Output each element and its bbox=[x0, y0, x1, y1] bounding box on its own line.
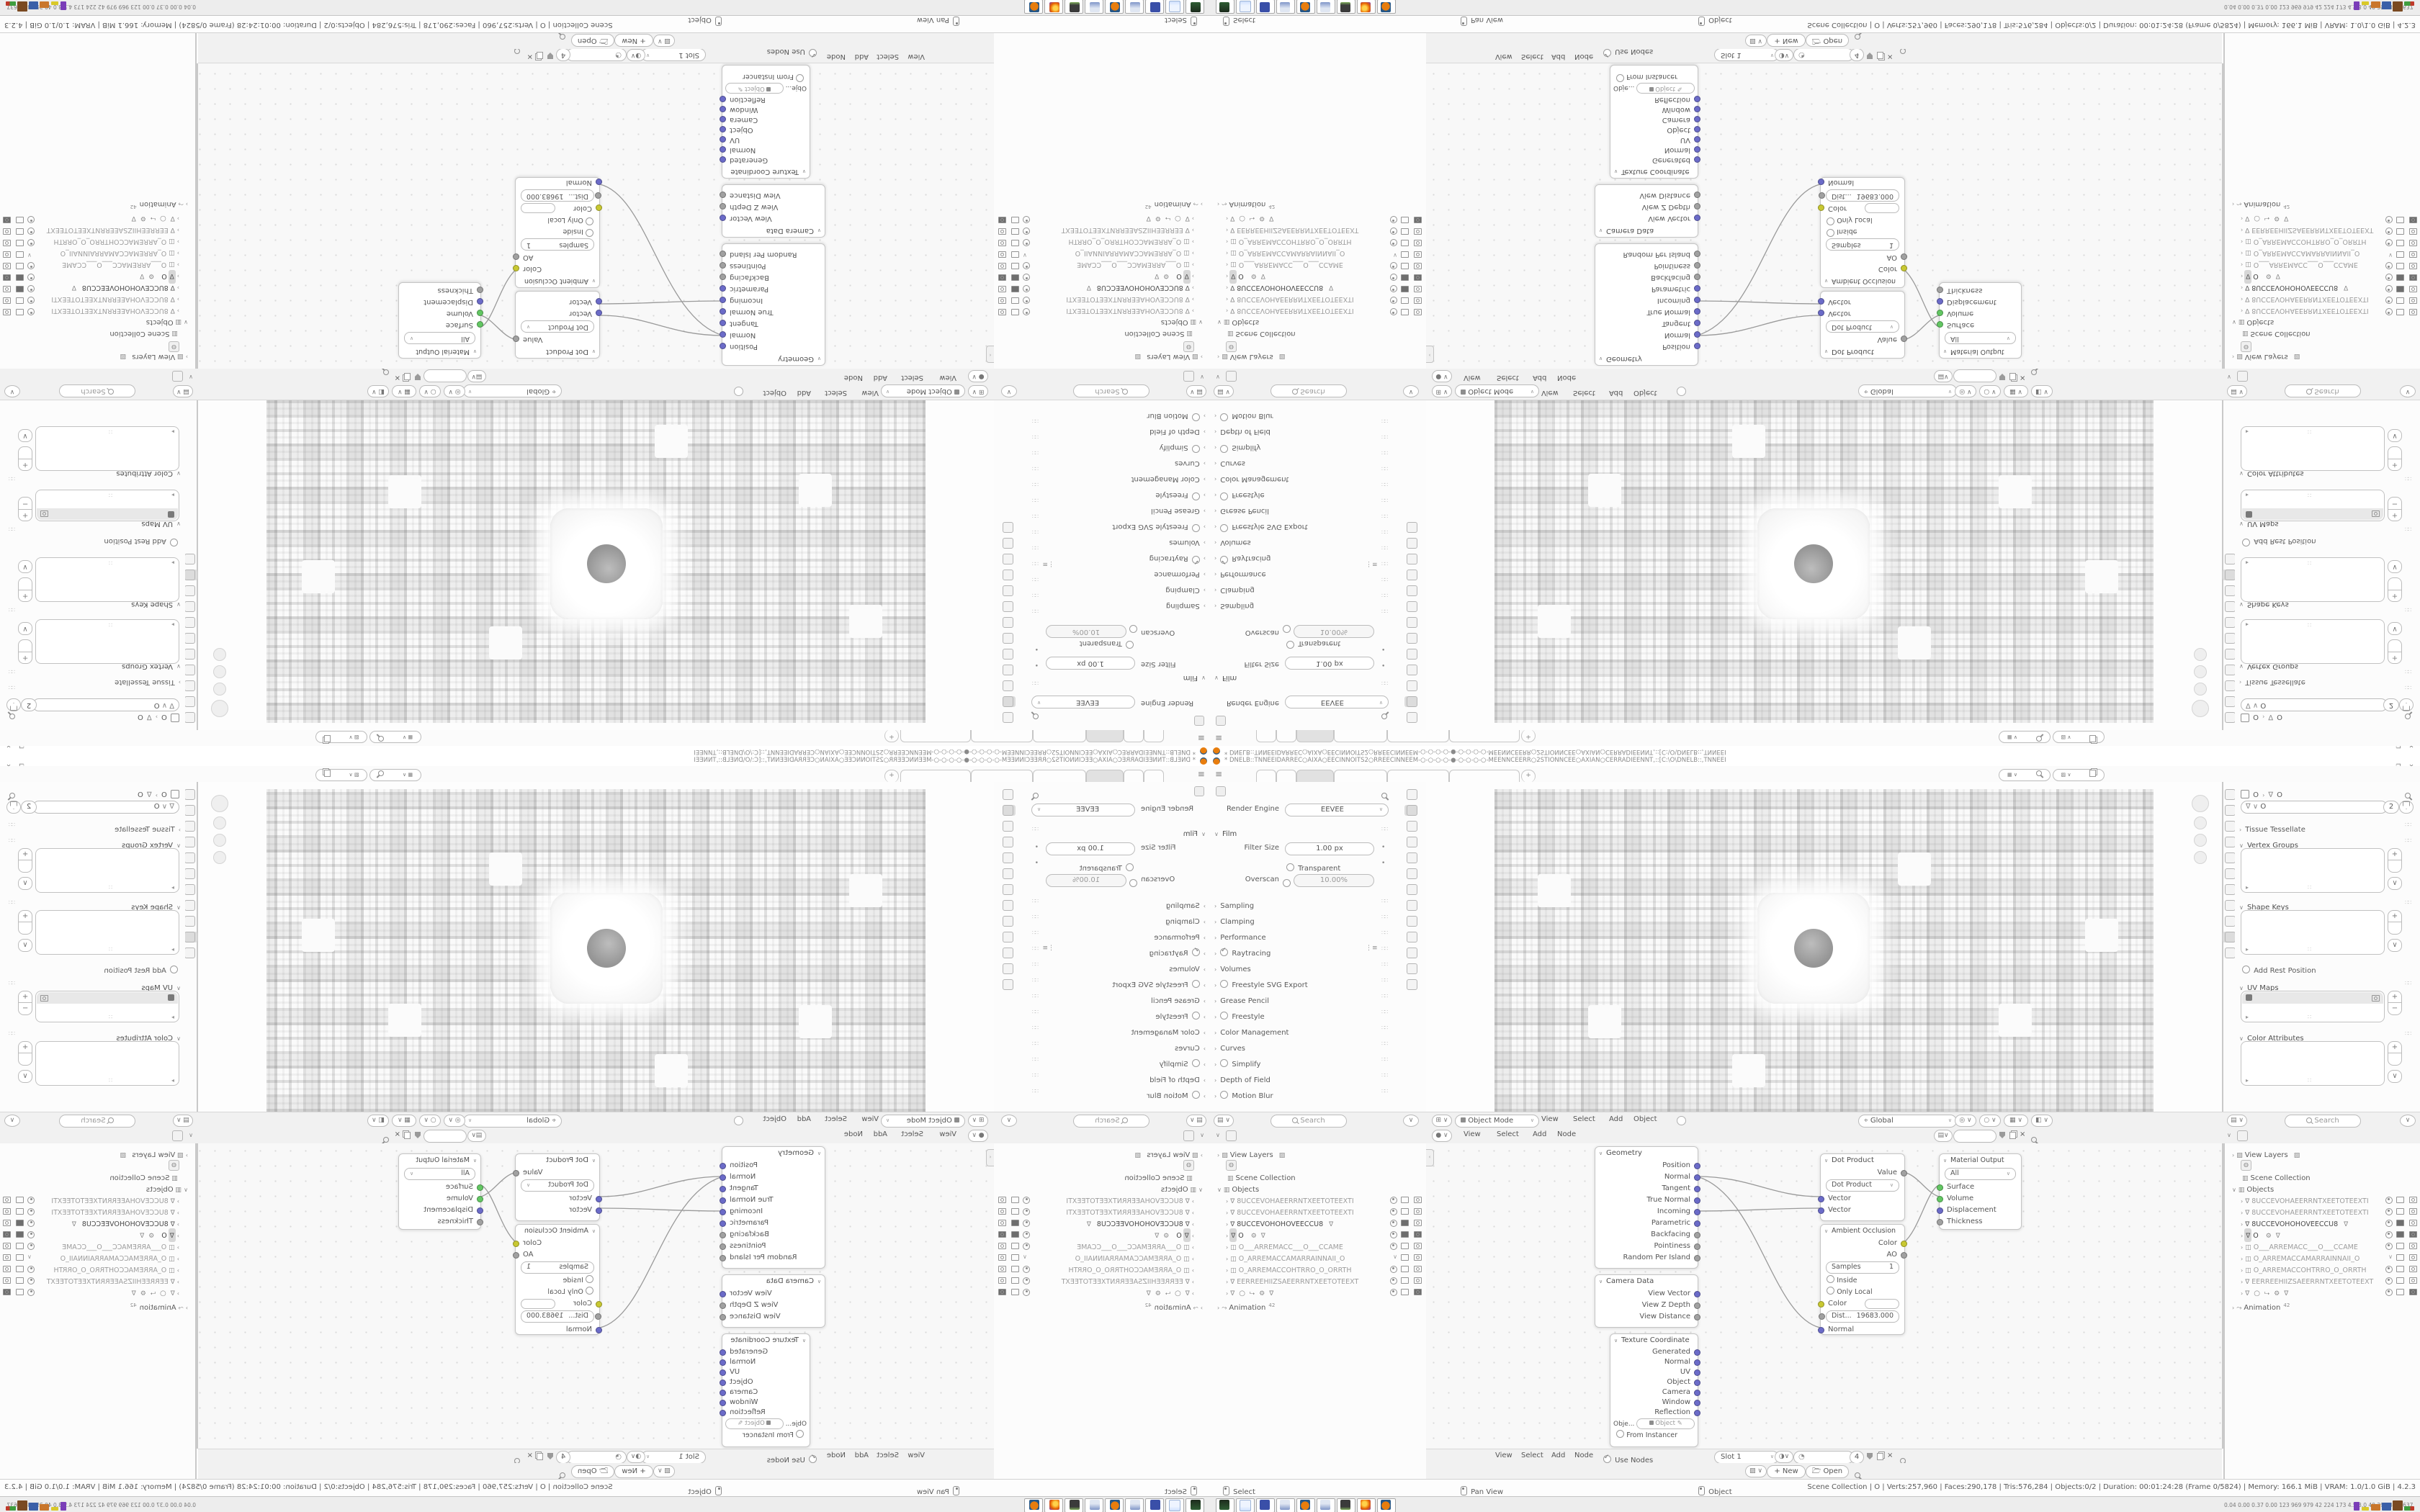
only-local-checkbox[interactable]: Only Local bbox=[1821, 1287, 1904, 1298]
socket-camera[interactable] bbox=[1694, 1390, 1700, 1396]
browse-image-icon[interactable]: ▨ ∨ bbox=[653, 1465, 675, 1477]
node-menu-view[interactable]: View bbox=[907, 1452, 925, 1459]
node-title[interactable]: Geometry bbox=[1595, 352, 1698, 365]
workspace-tab[interactable] bbox=[1276, 729, 1296, 742]
remove-color-attribute-button[interactable] bbox=[2388, 446, 2402, 459]
shape-key-specials-menu[interactable]: ∨ bbox=[2388, 939, 2402, 952]
taskbar-app-notepad[interactable] bbox=[1165, 1498, 1184, 1512]
outliner-item[interactable]: ›∇8UCCEVOHAEERRNTXEETOTEEXTI bbox=[0, 296, 195, 307]
socket-value[interactable] bbox=[513, 1170, 519, 1176]
socket-object[interactable] bbox=[1694, 126, 1700, 132]
viewport-menu-select[interactable]: Select bbox=[825, 1115, 847, 1123]
remove-shape-key-button[interactable] bbox=[2388, 577, 2402, 590]
object-tab-icon[interactable] bbox=[1407, 884, 1417, 895]
outliner-item[interactable]: ›∇○⮡⚙∇ bbox=[2225, 215, 2420, 226]
socket-thickness[interactable] bbox=[1937, 1219, 1943, 1225]
socket-color-out[interactable] bbox=[513, 1241, 519, 1247]
physics-tab-icon[interactable] bbox=[184, 916, 195, 927]
data-tab-icon[interactable] bbox=[184, 932, 195, 942]
vector-math-operation-dropdown[interactable]: Dot Product∨ bbox=[521, 320, 594, 333]
node-title[interactable]: Camera Data bbox=[1595, 224, 1698, 237]
section-freestyle-svg[interactable]: › Freestyle SVG Export bbox=[1214, 522, 1308, 536]
window-titlebar[interactable]: * DNELB::TNNEEIDARREC○AIXA○EECINNOITS2○R… bbox=[0, 756, 1210, 767]
color-attributes-list[interactable]: ▸∷ bbox=[2241, 1041, 2385, 1086]
anim-dot[interactable]: • bbox=[1035, 860, 1039, 867]
overscan-field[interactable]: 10.00% bbox=[1046, 625, 1126, 638]
render-tab-icon[interactable] bbox=[2225, 805, 2236, 816]
socket-distance[interactable] bbox=[595, 1313, 601, 1320]
section-freestyle[interactable]: › Freestyle bbox=[1214, 490, 1265, 504]
gizmo-dropdown[interactable]: ◧ ∨ bbox=[2031, 385, 2053, 397]
add-workspace-button[interactable]: + bbox=[884, 729, 899, 742]
node-title[interactable]: Ambient Occlusion bbox=[1821, 1225, 1904, 1238]
socket-ao-out[interactable] bbox=[513, 253, 519, 260]
view-layers-row[interactable]: ›▨View Layers▨ bbox=[994, 354, 1210, 364]
workspace-tab[interactable] bbox=[900, 770, 971, 783]
socket-position[interactable] bbox=[1694, 1163, 1700, 1169]
tool-tab-icon[interactable] bbox=[2225, 789, 2236, 800]
taskbar-app-blender[interactable] bbox=[1296, 1498, 1315, 1512]
scene-collection-row[interactable]: ▥Scene Collection bbox=[2225, 1171, 2420, 1182]
socket-view-z-depth[interactable] bbox=[720, 1302, 726, 1309]
vertex-groups-list[interactable]: ▸∷ bbox=[2241, 619, 2385, 664]
outliner-item[interactable]: ›∇EERREEHIIZSAEERRNTXEETOTEEXT bbox=[2225, 227, 2420, 238]
constraints-tab-icon[interactable] bbox=[1407, 948, 1417, 958]
browse-material-icon[interactable]: ◑∨ bbox=[1775, 1451, 1793, 1463]
workspace-tab[interactable] bbox=[900, 729, 971, 742]
viewport-menu-view[interactable]: View bbox=[861, 389, 879, 397]
viewport-editor-type-button[interactable]: ⊞ ∨ bbox=[968, 1115, 988, 1127]
view-layer-tab-icon[interactable] bbox=[1003, 665, 1013, 675]
outliner-item[interactable]: ›∇8UCCEVOHAEERRNTXEETOTEEXTI bbox=[2225, 296, 2420, 307]
viewport-menu-select[interactable]: Select bbox=[1573, 1115, 1595, 1123]
material-tab-icon[interactable] bbox=[1003, 979, 1013, 990]
section-depth-of-field[interactable]: › Depth of Field bbox=[1214, 1071, 1270, 1085]
socket-thickness[interactable] bbox=[477, 1219, 483, 1225]
outliner-item[interactable]: ›∇○⮡⚙∇ bbox=[994, 215, 1210, 226]
add-rest-position-checkbox[interactable]: Add Rest Position bbox=[104, 536, 178, 550]
camera-data-node[interactable]: Camera Data View Vector View Z Depth Vie… bbox=[722, 1274, 825, 1328]
overscan-checkbox[interactable] bbox=[1129, 876, 1137, 889]
vertex-group-specials-menu[interactable]: ∨ bbox=[2388, 622, 2402, 635]
sphere-object[interactable] bbox=[587, 544, 626, 583]
constraints-tab-icon[interactable] bbox=[1003, 554, 1013, 564]
outliner-display-mode-icon[interactable] bbox=[172, 1130, 183, 1141]
node-menu-select[interactable]: Select bbox=[1521, 53, 1543, 60]
node-menu-add[interactable]: Add bbox=[1533, 374, 1546, 382]
object-eyedropper-field[interactable]: Object ✎ bbox=[725, 1418, 784, 1429]
unlink-material-icon[interactable]: × bbox=[1887, 53, 1893, 60]
socket-incoming[interactable] bbox=[1694, 297, 1700, 303]
taskbar-app-monitor[interactable] bbox=[1337, 0, 1355, 14]
socket-color-in[interactable] bbox=[596, 1301, 602, 1308]
outliner-item[interactable]: ›∇8UCCEVOHAEERRNTXEETOTEEXTI bbox=[1210, 296, 1426, 307]
only-local-checkbox[interactable]: Only Local bbox=[516, 214, 599, 225]
outliner-display-mode-icon[interactable] bbox=[1226, 1130, 1237, 1141]
taskbar-app-monitor[interactable] bbox=[1337, 1498, 1355, 1512]
collapse-menus-button[interactable]: ∨ bbox=[1001, 1115, 1017, 1127]
view-layers-row[interactable]: ›▨View Layers▨ bbox=[1210, 1148, 1426, 1158]
properties-search-field[interactable]: Search bbox=[59, 1115, 135, 1128]
modifiers-tab-icon[interactable] bbox=[1003, 900, 1013, 911]
open-image-button[interactable]: 🗁 Open bbox=[1806, 1465, 1849, 1478]
node-editor-type-button[interactable]: ● ∨ bbox=[1432, 1130, 1452, 1142]
fake-user-button[interactable] bbox=[6, 698, 21, 711]
distance-field[interactable]: Dist...19683.000 bbox=[1826, 1310, 1899, 1323]
section-color-management[interactable]: › Color Management bbox=[1214, 1024, 1289, 1038]
socket-vector-1[interactable] bbox=[596, 310, 602, 316]
section-sampling[interactable]: › Sampling bbox=[1214, 601, 1254, 615]
distance-field[interactable]: Dist...19683.000 bbox=[521, 189, 594, 202]
pin-icon[interactable] bbox=[1033, 793, 1039, 798]
socket-normal[interactable] bbox=[720, 331, 726, 338]
snapping-toggle[interactable]: ◎ ∨ bbox=[1955, 385, 1976, 397]
mesh-datablock-field[interactable]: ∇ ∨ O bbox=[32, 801, 179, 814]
color-attributes-list[interactable]: ▸∷ bbox=[35, 426, 179, 471]
viewport-menu-view[interactable]: View bbox=[861, 1115, 879, 1123]
socket-object[interactable] bbox=[1694, 1380, 1700, 1386]
window-titlebar[interactable]: * DNELB::TNNEEIDARREC○AIXA○EECINNOITS2○R… bbox=[1210, 745, 2420, 756]
add-vertex-group-button[interactable]: + bbox=[18, 651, 32, 664]
render-tab-icon[interactable] bbox=[1407, 696, 1417, 707]
shader-node-editor[interactable]: ‹ Geometry Position Normal Tangent True … bbox=[1426, 63, 2223, 369]
camera-data-node[interactable]: Camera Data View Vector View Z Depth Vie… bbox=[1595, 184, 1698, 238]
socket-parametric[interactable] bbox=[720, 285, 726, 292]
transparent-checkbox[interactable]: Transparent bbox=[1080, 639, 1134, 652]
node-menu-node[interactable]: Node bbox=[1574, 1452, 1593, 1459]
output-tab-icon[interactable] bbox=[2225, 680, 2236, 691]
socket-incoming[interactable] bbox=[720, 1209, 726, 1215]
data-tab-icon[interactable] bbox=[1407, 963, 1417, 974]
outliner-item[interactable]: ›◫O___ARREMACC___O___CCAME bbox=[1210, 261, 1426, 272]
node-menu-node[interactable]: Node bbox=[827, 1452, 846, 1459]
socket-random-per-island[interactable] bbox=[1694, 1255, 1700, 1261]
particles-tab-icon[interactable] bbox=[1003, 585, 1013, 596]
outliner-item[interactable]: ›∇8UCCEVOHAEERRNTXEETOTEEXTI bbox=[2225, 307, 2420, 318]
pin-icon[interactable] bbox=[383, 369, 389, 375]
node-menu-add[interactable]: Add bbox=[855, 53, 869, 60]
target-dropdown[interactable]: All∨ bbox=[404, 1168, 475, 1180]
socket-reflection[interactable] bbox=[1694, 1410, 1700, 1416]
anim-dot[interactable]: • bbox=[1381, 645, 1385, 652]
remove-color-attribute-button[interactable] bbox=[18, 1053, 32, 1066]
world-row[interactable]: ◍ bbox=[2225, 1159, 2420, 1170]
outliner-display-mode-icon[interactable] bbox=[1183, 371, 1194, 382]
node-editor-type-button[interactable]: ● ∨ bbox=[968, 370, 988, 382]
section-grease-pencil[interactable]: › Grease Pencil bbox=[1214, 506, 1269, 520]
physics-tab-icon[interactable] bbox=[184, 585, 195, 596]
socket-tangent[interactable] bbox=[720, 320, 726, 326]
properties-search-field[interactable]: Search bbox=[2285, 384, 2361, 397]
pin-icon[interactable] bbox=[1855, 34, 1860, 40]
section-freestyle-svg[interactable]: › Freestyle SVG Export bbox=[1214, 976, 1308, 990]
properties-editor-type-button[interactable]: ▤ ∨ bbox=[2227, 385, 2247, 397]
material-output-node[interactable]: Material Output All∨ Surface Volume Disp… bbox=[1939, 282, 2022, 359]
world-row[interactable]: ◍ bbox=[2225, 342, 2420, 353]
render-camera-icon[interactable] bbox=[40, 510, 48, 517]
world-tab-icon[interactable] bbox=[2225, 633, 2236, 644]
workspace-tab[interactable] bbox=[1033, 729, 1086, 742]
section-performance[interactable]: › Performance bbox=[1154, 929, 1206, 942]
fake-user-icon[interactable] bbox=[415, 374, 421, 380]
output-tab-icon[interactable] bbox=[1407, 680, 1417, 691]
viewport-menu-view[interactable]: View bbox=[1541, 1115, 1559, 1123]
taskbar-app-media[interactable] bbox=[1186, 1498, 1204, 1512]
outliner-item[interactable]: ›∇8UCCEVOHAEERRNTXEETOTEEXTI bbox=[0, 307, 195, 318]
render-tab-icon[interactable] bbox=[1407, 805, 1417, 816]
socket-volume[interactable] bbox=[477, 310, 483, 316]
pivot-point-selector[interactable]: ▦ ∨ bbox=[2004, 1115, 2028, 1127]
taskbar-app-firefox[interactable] bbox=[1044, 0, 1063, 14]
tool-tab-icon[interactable] bbox=[1407, 789, 1417, 800]
workspace-tab[interactable] bbox=[1033, 770, 1086, 783]
from-instancer-checkbox[interactable]: From Instancer bbox=[1610, 1430, 1698, 1441]
material-slot-selector[interactable]: Slot 1∨ bbox=[1714, 48, 1779, 61]
section-color-management[interactable]: › Color Management bbox=[1214, 474, 1289, 488]
node-tree-datablock-field[interactable] bbox=[1953, 369, 1996, 382]
pin-icon[interactable] bbox=[560, 34, 565, 40]
data-tab-icon[interactable] bbox=[184, 570, 195, 580]
texture-coordinate-node[interactable]: Texture Coordinate Generated Normal UV O… bbox=[1610, 1333, 1698, 1447]
new-image-button[interactable]: + New bbox=[1767, 1465, 1806, 1478]
add-vertex-group-button[interactable]: + bbox=[2388, 651, 2402, 664]
samples-field[interactable]: Samples1 bbox=[521, 1261, 594, 1274]
world-row[interactable]: ◍ bbox=[0, 1159, 195, 1170]
mesh-datablock-field[interactable]: ∇ ∨ O bbox=[32, 698, 179, 711]
modifiers-tab-icon[interactable] bbox=[1407, 601, 1417, 612]
pin-icon[interactable] bbox=[383, 1137, 389, 1143]
data-tab-icon[interactable] bbox=[2225, 570, 2236, 580]
taskbar-app-firefox[interactable] bbox=[1357, 1498, 1376, 1512]
properties-search-field[interactable]: Search bbox=[1073, 1115, 1149, 1128]
unlink-datablock-icon[interactable]: × bbox=[395, 374, 400, 382]
transform-orientation-selector[interactable]: ⌖ Global∨ bbox=[463, 1115, 562, 1128]
ambient-occlusion-node[interactable]: Ambient Occlusion Color AO Samples1 Insi… bbox=[515, 177, 600, 288]
render-engine-dropdown[interactable]: EEVEE∨ bbox=[1031, 804, 1135, 816]
tool-tab-icon[interactable] bbox=[184, 712, 195, 723]
viewport-editor-type-button[interactable]: ⊞ ∨ bbox=[1432, 1115, 1452, 1127]
section-freestyle-svg[interactable]: › Freestyle SVG Export bbox=[1112, 976, 1206, 990]
remove-color-attribute-button[interactable] bbox=[18, 446, 32, 459]
render-tab-icon[interactable] bbox=[2225, 696, 2236, 707]
socket-tangent[interactable] bbox=[720, 1186, 726, 1192]
socket-displacement[interactable] bbox=[1937, 1207, 1943, 1214]
view-layer-selector[interactable]: ▨ ∨ bbox=[315, 731, 367, 743]
view-layer-tab-icon[interactable] bbox=[1407, 665, 1417, 675]
taskbar-app-disk64[interactable] bbox=[1145, 0, 1164, 14]
add-workspace-button[interactable]: + bbox=[1521, 729, 1536, 742]
viewport-3d[interactable] bbox=[197, 400, 994, 730]
node-title[interactable]: Dot Product bbox=[1821, 345, 1904, 358]
copy-datablock-icon[interactable] bbox=[2009, 373, 2016, 380]
object-tab-icon[interactable] bbox=[1003, 617, 1013, 628]
outliner-item-selected[interactable]: ›∇8UCCEVOHOHOVEECCU8∇ bbox=[994, 284, 1210, 295]
node-title[interactable]: Material Output bbox=[1940, 345, 2021, 358]
fake-user-button[interactable] bbox=[6, 801, 21, 814]
dot-product-node[interactable]: Dot Product Value Dot Product∨ Vector Ve… bbox=[1820, 291, 1905, 359]
section-depth-of-field[interactable]: › Depth of Field bbox=[1149, 427, 1206, 441]
outliner-item[interactable]: ›◫O_ARREMACCAMARRAINNAII_O∨ bbox=[994, 1251, 1210, 1262]
node-title[interactable]: Camera Data bbox=[1595, 1275, 1698, 1288]
node-title[interactable]: Geometry bbox=[1595, 1147, 1698, 1160]
render-engine-dropdown[interactable]: EEVEE∨ bbox=[1285, 696, 1389, 708]
add-uv-map-button[interactable]: + bbox=[2388, 508, 2402, 521]
section-curves[interactable]: › Curves bbox=[1175, 459, 1206, 472]
add-shape-key-button[interactable]: + bbox=[2388, 589, 2402, 602]
pin-icon[interactable] bbox=[1381, 793, 1387, 798]
outliner-item[interactable]: ›∇○⮡⚙∇ bbox=[1210, 215, 1426, 226]
outliner-item[interactable]: ›◫O_ARREMACCOHTRRO_O_ORRTH bbox=[0, 238, 195, 249]
socket-window[interactable] bbox=[720, 106, 726, 112]
pin-icon[interactable] bbox=[1381, 714, 1387, 719]
node-title[interactable]: Ambient Occlusion bbox=[516, 1225, 599, 1238]
outliner-item[interactable]: ›◫O_ARREMACCOHTRRO_O_ORRTH bbox=[1210, 238, 1426, 249]
node-menu-view[interactable]: View bbox=[1495, 1452, 1512, 1459]
node-menu-select[interactable]: Select bbox=[901, 374, 923, 382]
socket-view-distance[interactable] bbox=[1694, 192, 1700, 198]
taskbar-app-disk64[interactable] bbox=[1145, 1498, 1164, 1512]
particles-tab-icon[interactable] bbox=[1407, 585, 1417, 596]
anim-dot[interactable]: • bbox=[1381, 860, 1385, 867]
socket-displacement[interactable] bbox=[1937, 298, 1943, 305]
color-attribute-specials-menu[interactable]: ∨ bbox=[2388, 1070, 2402, 1083]
socket-normal[interactable] bbox=[1694, 1359, 1700, 1366]
material-slot-selector[interactable]: Slot 1∨ bbox=[641, 1451, 706, 1464]
pin-icon[interactable] bbox=[9, 793, 15, 798]
socket-distance[interactable] bbox=[1819, 192, 1825, 199]
transform-orientation-selector[interactable]: ⌖ Global∨ bbox=[1858, 1115, 1957, 1128]
section-simplify[interactable]: › Simplify bbox=[1160, 443, 1206, 456]
node-title[interactable]: Ambient Occlusion bbox=[516, 274, 599, 287]
pin-icon[interactable] bbox=[1855, 1472, 1860, 1478]
texture-coordinate-node[interactable]: Texture Coordinate Generated Normal UV O… bbox=[722, 65, 810, 179]
socket-normal-in[interactable] bbox=[1818, 179, 1824, 185]
outliner-item[interactable]: ›◫O_ARREMACCOHTRRO_O_ORRTH bbox=[994, 1263, 1210, 1274]
socket-view-z-depth[interactable] bbox=[1694, 1302, 1700, 1309]
node-tree-datablock-field[interactable] bbox=[423, 369, 467, 382]
outliner-item-selected[interactable]: ›∇8UCCEVOHOHOVEECCU8∇ bbox=[1210, 284, 1426, 295]
outliner-item[interactable]: ›◫O_ARREMACCAMARRAINNAII_O∨ bbox=[2225, 250, 2420, 261]
properties-search-field[interactable]: Search bbox=[1270, 384, 1347, 397]
socket-generated[interactable] bbox=[720, 156, 726, 163]
proportional-edit-toggle[interactable]: ○ ∨ bbox=[1979, 1115, 2001, 1127]
taskbar-app-calculator2[interactable] bbox=[1317, 1498, 1335, 1512]
constraints-tab-icon[interactable] bbox=[1003, 948, 1013, 958]
shape-key-specials-menu[interactable]: ∨ bbox=[18, 939, 32, 952]
uv-map-item[interactable] bbox=[2242, 508, 2383, 520]
node-menu-view[interactable]: View bbox=[1464, 1130, 1481, 1138]
object-tab-icon[interactable] bbox=[1003, 884, 1013, 895]
add-rest-position-checkbox[interactable]: Add Rest Position bbox=[104, 962, 178, 976]
socket-ao-out[interactable] bbox=[1901, 253, 1907, 260]
uv-maps-list[interactable]: ▸∷ bbox=[35, 490, 179, 521]
section-performance[interactable]: › Performance bbox=[1214, 929, 1266, 942]
outliner-item[interactable]: ›∇8UCCEVOHAEERRNTXEETOTEEXTI bbox=[994, 307, 1210, 318]
node-title[interactable]: Dot Product bbox=[516, 1154, 599, 1167]
texture-coordinate-node[interactable]: Texture Coordinate Generated Normal UV O… bbox=[1610, 65, 1698, 179]
workspace-tab[interactable] bbox=[1124, 770, 1144, 783]
users-count[interactable]: 2 bbox=[2383, 801, 2399, 814]
uv-map-item[interactable] bbox=[2242, 992, 2383, 1004]
outliner-display-mode-icon[interactable] bbox=[2237, 1130, 2248, 1141]
view-layers-row[interactable]: ›▨View Layers▨ bbox=[994, 1148, 1210, 1158]
mode-selector[interactable]: Object Mode ∨ bbox=[1455, 1115, 1539, 1128]
section-freestyle[interactable]: › Freestyle bbox=[1214, 1008, 1265, 1022]
socket-backfacing[interactable] bbox=[1694, 274, 1700, 280]
outliner-item[interactable]: ›◫O___ARREMACC___O___CCAME bbox=[2225, 261, 2420, 272]
dot-product-node[interactable]: Dot Product Value Dot Product∨ Vector Ve… bbox=[515, 1153, 600, 1221]
workspace-tab-active[interactable] bbox=[1296, 729, 1334, 742]
taskbar-app-notepad[interactable] bbox=[1236, 1498, 1255, 1512]
modifiers-tab-icon[interactable] bbox=[2225, 900, 2236, 911]
taskbar-app-blender[interactable] bbox=[1105, 1498, 1124, 1512]
node-menu-view[interactable]: View bbox=[939, 374, 956, 382]
render-camera-icon[interactable] bbox=[40, 995, 48, 1002]
unlink-datablock-icon[interactable]: × bbox=[2020, 374, 2025, 382]
section-tissue-tessellate[interactable]: › Tissue Tessellate bbox=[2239, 678, 2305, 691]
zoom-gizmo-icon[interactable] bbox=[2194, 683, 2207, 696]
workspace-tab[interactable] bbox=[1144, 770, 1164, 783]
view-layers-row[interactable]: ›▨View Layers▨ bbox=[2225, 1148, 2420, 1158]
outliner-item[interactable]: ›∇○⮡⚙∇ bbox=[2225, 1286, 2420, 1297]
view-layers-row[interactable]: ›▨View Layers▨ bbox=[0, 1148, 195, 1158]
view-layer-selector[interactable]: ▨ ∨ bbox=[2053, 769, 2105, 781]
socket-tangent[interactable] bbox=[1694, 1186, 1700, 1192]
node-menu-add[interactable]: Add bbox=[874, 1130, 887, 1138]
anim-dot[interactable]: • bbox=[1035, 844, 1039, 851]
material-tab-icon[interactable] bbox=[1407, 522, 1417, 533]
unlink-datablock-icon[interactable]: × bbox=[395, 1130, 400, 1138]
app-menu-icon[interactable]: ≡ bbox=[1215, 733, 1222, 743]
socket-volume[interactable] bbox=[1937, 1196, 1943, 1202]
scene-collection-row[interactable]: ▥Scene Collection bbox=[0, 1171, 195, 1182]
vector-math-operation-dropdown[interactable]: Dot Product∨ bbox=[1826, 320, 1899, 333]
output-tab-icon[interactable] bbox=[1407, 821, 1417, 832]
socket-displacement[interactable] bbox=[477, 1207, 483, 1214]
socket-value[interactable] bbox=[1901, 1170, 1907, 1176]
pin-icon[interactable] bbox=[9, 714, 15, 719]
outliner-item[interactable]: ›∇EERREEHIIZSAEERRNTXEETOTEEXT bbox=[1210, 227, 1426, 238]
taskbar-app-monitor[interactable] bbox=[1065, 0, 1083, 14]
outliner-item-active[interactable]: ›∇O⚙∇ bbox=[2225, 273, 2420, 284]
copy-material-icon[interactable] bbox=[537, 1453, 543, 1460]
object-eyedropper-field[interactable]: Object ✎ bbox=[725, 83, 784, 94]
socket-color-in[interactable] bbox=[596, 204, 602, 211]
output-tab-icon[interactable] bbox=[184, 821, 195, 832]
scene-collection-row[interactable]: ▥Scene Collection bbox=[994, 330, 1210, 341]
outliner-item[interactable]: ›∇8UCCEVOHAEERRNTXEETOTEEXTI bbox=[994, 1194, 1210, 1205]
color-swatch[interactable] bbox=[521, 1299, 555, 1309]
outliner-item[interactable]: ›◫O_ARREMACCAMARRAINNAII_O∨ bbox=[1210, 1251, 1426, 1262]
browse-image-icon[interactable]: ▨ ∨ bbox=[1745, 35, 1767, 47]
particles-tab-icon[interactable] bbox=[1003, 916, 1013, 927]
tool-tab-icon[interactable] bbox=[184, 789, 195, 800]
remove-vertex-group-button[interactable] bbox=[18, 639, 32, 652]
socket-reflection[interactable] bbox=[1694, 96, 1700, 102]
collapse-menus-button[interactable]: ∨ bbox=[4, 1115, 20, 1127]
render-engine-dropdown[interactable]: EEVEE∨ bbox=[1031, 696, 1135, 708]
viewport-menu-select[interactable]: Select bbox=[825, 389, 847, 397]
outliner-item-active[interactable]: ›∇O⚙∇ bbox=[2225, 1228, 2420, 1239]
pin-icon[interactable] bbox=[560, 1472, 565, 1478]
color-attribute-specials-menu[interactable]: ∨ bbox=[18, 429, 32, 442]
socket-pointiness[interactable] bbox=[1694, 262, 1700, 269]
mesh-datablock-field[interactable]: ∇ ∨ O bbox=[2241, 801, 2388, 814]
outliner-item[interactable]: ›◫O_ARREMACCOHTRRO_O_ORRTH bbox=[2225, 1263, 2420, 1274]
vertex-groups-list[interactable]: ▸∷ bbox=[35, 848, 179, 893]
material-tab-icon[interactable] bbox=[184, 554, 195, 564]
sphere-object[interactable] bbox=[1794, 544, 1833, 583]
